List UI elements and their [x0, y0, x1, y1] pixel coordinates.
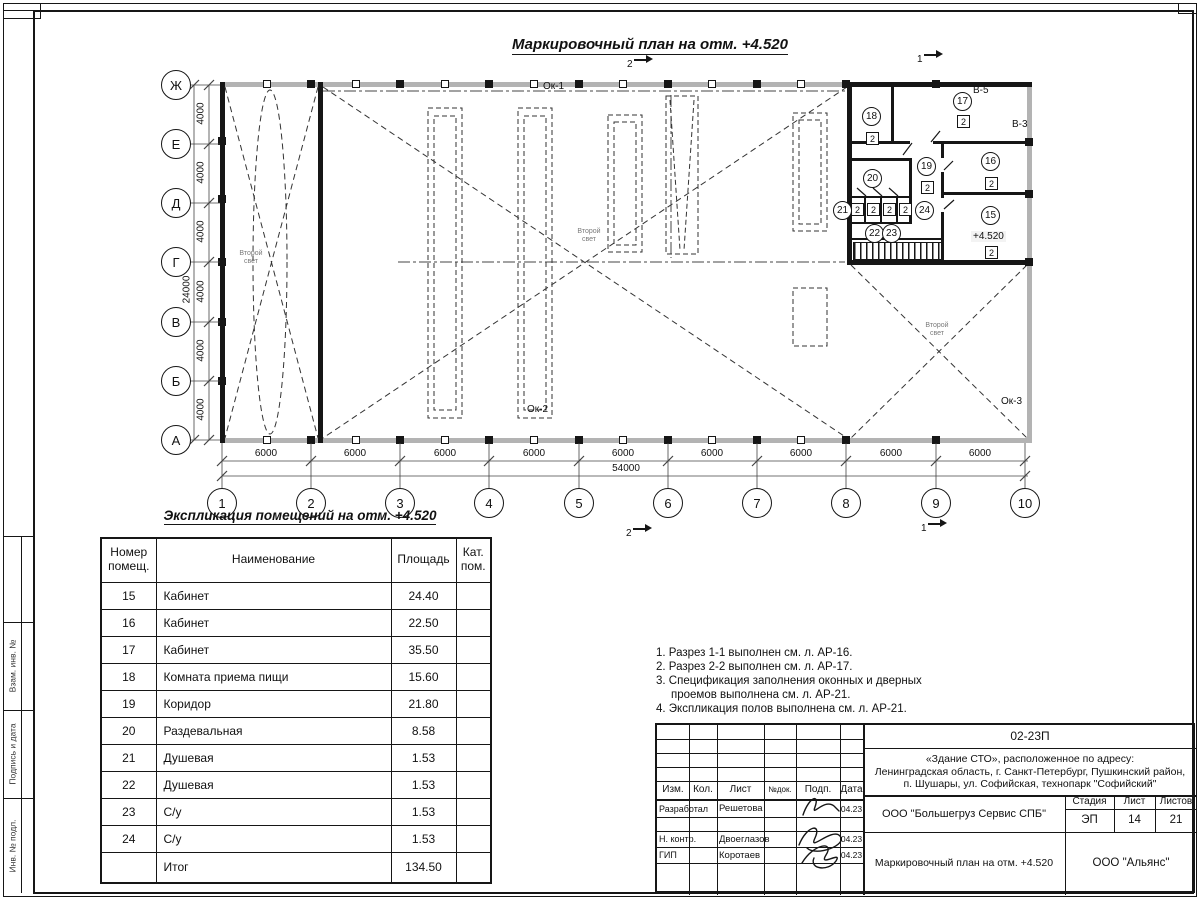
wall-corridor-right-a — [941, 144, 944, 158]
dim-4000: 4000 — [196, 331, 207, 371]
stamp-col-izm: Изм. — [657, 781, 689, 799]
door-mark: 2 — [899, 203, 912, 216]
dim-6000: 6000 — [425, 448, 465, 459]
room-mark-21: 21 — [833, 201, 852, 220]
vent-label-v5: В-5 — [973, 85, 989, 96]
plan-title: Маркировочный план на отм. +4.520 — [400, 36, 900, 53]
section-arrow-icon — [936, 50, 943, 58]
dim-4000: 4000 — [196, 390, 207, 430]
window-label-ok3: Ок-3 — [1001, 396, 1022, 407]
stamp-date: 04.23 — [840, 801, 863, 817]
dim-24000: 24000 — [182, 266, 193, 314]
staircase — [853, 242, 943, 260]
section-mark-2-top: 2 — [627, 52, 651, 70]
dim-6000: 6000 — [603, 448, 643, 459]
table-row: 22Душевая1.53 — [101, 771, 491, 798]
door-mark: 2 — [851, 203, 864, 216]
stamp-address: «Здание СТО», расположенное по адресу:Ле… — [865, 749, 1195, 795]
grid-bubble-row: Е — [161, 129, 191, 159]
section-arrow-icon — [645, 524, 652, 532]
wall-corridor-top-a — [852, 141, 910, 144]
room-mark-24: 24 — [915, 201, 934, 220]
door-mark: 2 — [985, 177, 998, 190]
stamp-col-list: Лист — [717, 781, 764, 799]
room-mark-16: 16 — [981, 152, 1000, 171]
table-title: Экспликация помещений на отм. +4.520 — [110, 508, 490, 523]
corner-box-topleft-line — [3, 10, 41, 11]
title-block: Изм. Кол. Лист №док. Подп. Дата Разработ… — [655, 723, 1195, 893]
stamp-stage-value: ЭП — [1065, 809, 1114, 832]
margin-label: Подпись и дата — [8, 723, 18, 784]
window-label-ok2: Ок-2 — [527, 404, 548, 415]
room-mark-23: 23 — [882, 224, 901, 243]
room-mark-15: 15 — [981, 206, 1000, 225]
section-arrow-icon — [646, 55, 653, 63]
corner-box-topright — [1178, 3, 1197, 14]
dim-4000: 4000 — [196, 212, 207, 252]
stamp-col-ndok: №док. — [764, 781, 796, 799]
note-line: 1. Разрез 1-1 выполнен см. л. АР-16. — [656, 646, 934, 660]
stamp-org2: ООО "Альянс" — [1065, 832, 1197, 895]
wall-17-18 — [891, 87, 894, 143]
dim-6000: 6000 — [514, 448, 554, 459]
note-line: 4. Экспликация полов выполнена см. л. АР… — [656, 702, 934, 716]
stamp-col-data: Дата — [840, 781, 863, 799]
door-mark: 2 — [921, 181, 934, 194]
stamp-org1: ООО "Большегруз Сервис СПБ" — [863, 797, 1065, 832]
table-row: 18Комната приема пищи15.60 — [101, 663, 491, 690]
stamp-sheet-value: 14 — [1114, 809, 1155, 832]
wall-15-16 — [943, 192, 1030, 195]
dim-6000: 6000 — [781, 448, 821, 459]
table-row: 17Кабинет35.50 — [101, 636, 491, 663]
dim-6000: 6000 — [692, 448, 732, 459]
grid-bubble-col: 9 — [921, 488, 951, 518]
dim-6000: 6000 — [871, 448, 911, 459]
margin-cell-inv: Инв. № подл. — [4, 798, 21, 893]
wall-stall-div3 — [896, 198, 898, 224]
wall-axis2 — [318, 82, 323, 443]
grid-bubble-col: 7 — [742, 488, 772, 518]
table-header-row: Номер помещ. Наименование Площадь Кат. п… — [101, 538, 491, 582]
stamp-ncontrol-label: Н. контр. — [659, 832, 717, 847]
wall-stall-div1 — [864, 198, 866, 224]
grid-bubble-row: Д — [161, 188, 191, 218]
stamp-col-podp: Подп. — [796, 781, 840, 799]
section-mark-1-top: 1 — [917, 47, 941, 65]
drawing-sheet: { "sheet_title": "Маркировочный план на … — [0, 0, 1200, 900]
wall-block-bottom — [847, 260, 1032, 265]
margin-label: Взам. инв. № — [8, 640, 18, 693]
wall-block-top — [846, 82, 1032, 87]
grid-bubble-row: Ж — [161, 70, 191, 100]
stamp-date: 04.23 — [840, 848, 863, 863]
stamp-developed-label: Разработал — [659, 801, 717, 817]
wall-left — [220, 82, 225, 443]
door-mark: 2 — [985, 246, 998, 259]
wall-stalls-bottom — [852, 222, 912, 224]
stamp-col-kol: Кол. — [689, 781, 717, 799]
table-row: 24С/у1.53 — [101, 825, 491, 852]
table-row: 19Коридор21.80 — [101, 690, 491, 717]
table-row: 20Раздевальная8.58 — [101, 717, 491, 744]
section-arrow-icon — [940, 519, 947, 527]
wall-bottom — [222, 438, 1032, 443]
col-header-num: Номер помещ. — [101, 538, 156, 582]
margin-label: Инв. № подл. — [8, 819, 18, 872]
room-mark-17: 17 — [953, 92, 972, 111]
grid-bubble-col: 6 — [653, 488, 683, 518]
stamp-doc-title: Маркировочный план на отм. +4.520 — [863, 832, 1065, 895]
table-row: 16Кабинет22.50 — [101, 609, 491, 636]
wall-corridor-top-b — [933, 141, 1030, 144]
stamp-sheets-value: 21 — [1155, 809, 1197, 832]
section-mark-2-bottom: 2 — [626, 521, 650, 539]
explication-table: Номер помещ. Наименование Площадь Кат. п… — [100, 537, 492, 884]
grid-bubble-col: 8 — [831, 488, 861, 518]
margin-cell-podpis: Подпись и дата — [4, 710, 21, 798]
note-line: 3. Спецификация заполнения оконных и две… — [656, 674, 934, 702]
stamp-stage-label: Стадия — [1065, 795, 1114, 809]
dim-6000: 6000 — [960, 448, 1000, 459]
room-mark-19: 19 — [917, 157, 936, 176]
stamp-developed-name: Решетова — [719, 801, 779, 817]
col-header-name: Наименование — [156, 538, 391, 582]
margin-cell-vzam: Взам. инв. № — [4, 622, 21, 710]
col-header-cat: Кат. пом. — [456, 538, 491, 582]
notes-block: 1. Разрез 1-1 выполнен см. л. АР-16. 2. … — [656, 646, 934, 716]
dim-6000: 6000 — [335, 448, 375, 459]
stamp-date: 04.23 — [840, 832, 863, 847]
col-header-area: Площадь — [391, 538, 456, 582]
table-row: 23С/у1.53 — [101, 798, 491, 825]
door-mark: 2 — [883, 203, 896, 216]
note-line: 2. Разрез 2-2 выполнен см. л. АР-17. — [656, 660, 934, 674]
grid-bubble-row: Б — [161, 366, 191, 396]
grid-bubble-col: 5 — [564, 488, 594, 518]
stamp-code: 02-23П — [863, 725, 1197, 748]
door-mark: 2 — [957, 115, 970, 128]
wall-room20-top — [852, 158, 910, 161]
corner-box-topleft — [3, 3, 41, 19]
door-mark: 2 — [867, 203, 880, 216]
dim-4000: 4000 — [196, 153, 207, 193]
elevation-mark: +4.520 — [971, 231, 1006, 242]
section-mark-1-bottom: 1 — [921, 516, 945, 534]
grid-bubble-row: А — [161, 425, 191, 455]
dim-6000: 6000 — [246, 448, 286, 459]
dim-4000: 4000 — [196, 272, 207, 312]
second-light-label: Второй свет — [919, 322, 955, 338]
stamp-sheets-label: Листов — [1155, 795, 1197, 809]
stamp-ncontrol-name: Двоеглазов — [719, 832, 787, 847]
margin-strip-divider — [21, 536, 22, 893]
room-mark-18: 18 — [862, 107, 881, 126]
vent-label-v3: В-3 — [1012, 119, 1028, 130]
grid-bubble-col: 10 — [1010, 488, 1040, 518]
door-mark: 2 — [866, 132, 879, 145]
stamp-sheet-label: Лист — [1114, 795, 1155, 809]
table-row: 15Кабинет24.40 — [101, 582, 491, 609]
stamp-gip-label: ГИП — [659, 848, 717, 863]
second-light-label: Второй свет — [233, 250, 269, 266]
stamp-gip-name: Коротаев — [719, 848, 787, 863]
second-light-label: Второй свет — [571, 228, 607, 244]
window-label-ok1: Ок-1 — [543, 81, 564, 92]
dim-4000: 4000 — [196, 94, 207, 134]
table-row: 21Душевая1.53 — [101, 744, 491, 771]
table-total-row: Итог134.50 — [101, 852, 491, 883]
room-mark-20: 20 — [863, 169, 882, 188]
wall-stall-div2 — [880, 198, 882, 224]
dim-54000: 54000 — [602, 463, 650, 474]
